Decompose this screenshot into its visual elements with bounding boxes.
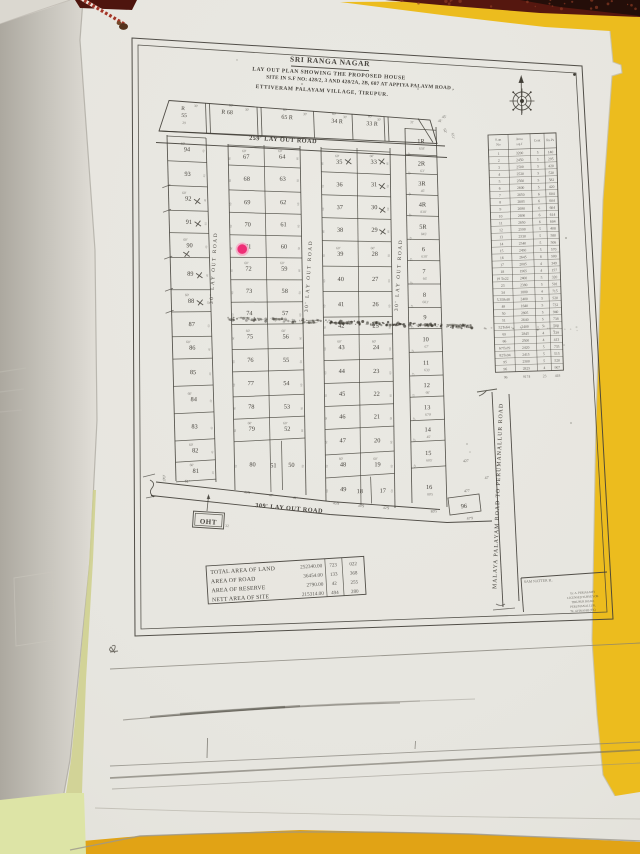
svg-text:6: 6: [539, 213, 541, 217]
svg-text:5: 5: [542, 324, 544, 328]
svg-text:50: 50: [288, 462, 294, 469]
svg-text:52: 52: [284, 426, 290, 433]
svg-text:30': 30': [343, 115, 348, 119]
svg-text:96: 96: [461, 503, 468, 510]
svg-text:6: 6: [539, 220, 541, 224]
svg-text:582: 582: [549, 178, 555, 182]
svg-text:59: 59: [281, 266, 287, 273]
svg-text:5R: 5R: [419, 224, 427, 231]
svg-text:5: 5: [539, 234, 541, 238]
svg-text:33: 33: [371, 159, 377, 166]
svg-text:408: 408: [550, 227, 556, 231]
svg-text:6: 6: [538, 199, 540, 203]
svg-text:35: 35: [336, 159, 342, 166]
svg-text:66': 66': [426, 391, 431, 395]
svg-text:10: 10: [499, 214, 503, 218]
svg-text:93: 93: [184, 171, 190, 178]
svg-text:5: 5: [537, 151, 539, 155]
svg-text:17: 17: [500, 263, 504, 267]
svg-text:63': 63': [420, 169, 425, 173]
svg-text:3: 3: [498, 166, 500, 170]
svg-text:34: 34: [501, 291, 505, 295]
svg-text:2845: 2845: [522, 332, 530, 336]
svg-text:683': 683': [422, 300, 428, 304]
svg-text:349: 349: [551, 261, 557, 265]
svg-text:715: 715: [552, 289, 558, 293]
svg-text:61': 61': [185, 478, 190, 483]
svg-text:580: 580: [550, 234, 556, 238]
svg-text:2400: 2400: [520, 276, 528, 280]
svg-text:5: 5: [542, 317, 544, 321]
svg-text:940: 940: [553, 310, 559, 314]
svg-text:6: 6: [538, 206, 540, 210]
svg-text:2560: 2560: [517, 179, 525, 183]
svg-text:11: 11: [423, 360, 429, 367]
svg-text:45': 45': [421, 189, 426, 193]
svg-text:31: 31: [371, 181, 377, 188]
svg-text:638': 638': [419, 147, 425, 151]
svg-text:2400: 2400: [521, 325, 529, 329]
svg-text:570: 570: [551, 247, 557, 251]
svg-text:60': 60': [181, 142, 186, 146]
svg-text:2690: 2690: [518, 214, 526, 218]
svg-text:23: 23: [543, 374, 547, 378]
svg-text:494: 494: [331, 591, 339, 596]
svg-text:2520: 2520: [516, 172, 524, 176]
svg-text:2640: 2640: [521, 318, 529, 322]
svg-text:5.35&48: 5.35&48: [497, 298, 510, 302]
svg-text:53: 53: [284, 404, 290, 411]
svg-text:12: 12: [499, 228, 503, 232]
svg-text:157: 157: [551, 268, 557, 272]
svg-text:614: 614: [550, 213, 556, 217]
svg-text:60': 60': [244, 261, 249, 265]
svg-text:60': 60': [185, 293, 190, 297]
svg-text:60': 60': [281, 329, 286, 333]
svg-text:R: R: [181, 106, 185, 112]
svg-text:60': 60': [190, 463, 195, 467]
svg-text:2650: 2650: [517, 193, 525, 197]
svg-text:845': 845': [421, 232, 427, 236]
svg-text:19 To22: 19 To22: [496, 277, 508, 281]
svg-text:29: 29: [182, 121, 186, 125]
svg-text:679': 679': [425, 413, 431, 417]
svg-text:2: 2: [498, 159, 500, 163]
svg-text:66': 66': [423, 277, 428, 281]
svg-text:368: 368: [350, 571, 358, 576]
svg-text:5: 5: [538, 185, 540, 189]
svg-text:604: 604: [549, 206, 555, 210]
svg-text:55: 55: [181, 113, 187, 119]
svg-text:36454.00: 36454.00: [303, 572, 323, 579]
svg-text:520: 520: [554, 359, 560, 363]
svg-text:41': 41': [438, 119, 443, 123]
svg-text:5: 5: [543, 359, 545, 363]
svg-text:50: 50: [502, 312, 506, 316]
svg-text:10: 10: [422, 336, 428, 343]
svg-text:14: 14: [500, 242, 504, 246]
svg-text:42'9: 42'9: [383, 506, 390, 510]
svg-text:6: 6: [499, 187, 501, 191]
svg-text:2R: 2R: [418, 160, 426, 167]
svg-text:295: 295: [548, 157, 554, 161]
svg-text:66: 66: [503, 339, 507, 343]
svg-text:63: 63: [279, 176, 285, 183]
svg-text:520: 520: [552, 296, 558, 300]
svg-text:27: 27: [372, 276, 378, 283]
svg-text:51: 51: [502, 319, 506, 323]
svg-text:2825: 2825: [523, 366, 531, 370]
svg-text:723: 723: [329, 563, 337, 568]
svg-text:60': 60': [372, 340, 377, 344]
svg-text:6: 6: [540, 255, 542, 259]
svg-text:43: 43: [338, 344, 344, 351]
svg-text:60': 60': [246, 329, 251, 333]
svg-text:s.q.f: s.q.f: [516, 142, 523, 146]
svg-text:2650: 2650: [518, 221, 526, 225]
svg-text:34 R: 34 R: [331, 119, 343, 126]
svg-text:60': 60': [332, 112, 337, 116]
svg-text:339: 339: [553, 331, 559, 335]
svg-text:1: 1: [498, 152, 500, 156]
svg-text:907: 907: [555, 366, 561, 370]
svg-text:60': 60': [335, 154, 340, 158]
svg-text:1880: 1880: [520, 290, 528, 294]
svg-text:26: 26: [372, 301, 378, 308]
svg-text:60': 60': [278, 149, 283, 153]
svg-text:604: 604: [549, 192, 555, 196]
svg-text:735: 735: [554, 345, 560, 349]
svg-text:31': 31': [410, 120, 415, 124]
svg-text:60': 60': [339, 457, 344, 461]
svg-text:80'5: 80'5: [427, 492, 433, 496]
svg-text:2590: 2590: [518, 227, 526, 231]
svg-text:9174: 9174: [523, 375, 531, 379]
svg-text:5: 5: [541, 283, 543, 287]
svg-text:2450: 2450: [516, 158, 524, 162]
svg-text:84: 84: [191, 396, 198, 403]
svg-text:5: 5: [543, 345, 545, 349]
svg-text:4: 4: [541, 290, 543, 294]
svg-text:61: 61: [280, 221, 286, 228]
svg-text:95: 95: [503, 360, 507, 364]
svg-text:65 R: 65 R: [281, 115, 293, 122]
svg-text:2645: 2645: [519, 255, 527, 259]
svg-text:83: 83: [191, 423, 197, 430]
svg-text:40'9: 40'9: [358, 504, 365, 508]
svg-text:5: 5: [539, 241, 541, 245]
svg-text:320: 320: [552, 275, 558, 279]
svg-text:54: 54: [283, 380, 290, 387]
svg-text:500: 500: [551, 254, 557, 258]
svg-text:75: 75: [247, 333, 253, 340]
svg-text:2530: 2530: [518, 234, 526, 238]
svg-text:13: 13: [499, 235, 503, 239]
svg-text:60': 60': [182, 191, 187, 195]
svg-text:5: 5: [540, 248, 542, 252]
svg-text:91: 91: [186, 219, 192, 226]
svg-text:81: 81: [193, 468, 199, 475]
svg-text:20: 20: [374, 437, 380, 444]
svg-text:1965: 1965: [520, 269, 528, 273]
svg-text:67: 67: [243, 154, 249, 161]
svg-text:67To79: 67To79: [499, 346, 510, 350]
svg-text:4R: 4R: [419, 201, 427, 208]
svg-text:4: 4: [542, 338, 544, 342]
svg-text:52To64: 52To64: [498, 325, 509, 329]
svg-text:15: 15: [425, 450, 431, 457]
svg-text:74: 74: [246, 310, 253, 317]
svg-text:70: 70: [244, 221, 250, 228]
svg-text:420: 420: [548, 164, 554, 168]
svg-text:Rs.Ps: Rs.Ps: [546, 138, 554, 142]
svg-text:633': 633': [424, 368, 430, 372]
svg-text:64: 64: [279, 154, 286, 161]
svg-text:47': 47': [485, 476, 490, 480]
svg-text:4: 4: [540, 269, 542, 273]
svg-text:501: 501: [552, 282, 558, 286]
svg-text:23: 23: [373, 368, 379, 375]
svg-text:96: 96: [503, 367, 507, 371]
svg-text:60': 60': [229, 103, 234, 107]
svg-text:5: 5: [541, 303, 543, 307]
svg-text:49: 49: [501, 305, 505, 309]
svg-text:60': 60': [283, 421, 288, 425]
svg-text:520: 520: [548, 171, 554, 175]
svg-text:2500: 2500: [522, 359, 530, 363]
svg-text:732: 732: [553, 303, 559, 307]
svg-text:3200: 3200: [516, 151, 524, 155]
svg-text:79: 79: [249, 426, 255, 433]
svg-text:30': 30': [194, 104, 199, 108]
svg-text:2685: 2685: [517, 200, 525, 204]
svg-text:5: 5: [537, 171, 539, 175]
svg-text:60': 60': [373, 457, 378, 461]
svg-text:4: 4: [540, 262, 542, 266]
svg-text:838': 838': [420, 210, 426, 214]
svg-text:S.an: S.an: [495, 138, 501, 142]
svg-text:11: 11: [499, 221, 503, 225]
svg-text:32: 32: [225, 524, 229, 528]
svg-text:427: 427: [463, 459, 469, 463]
svg-text:47: 47: [340, 437, 346, 444]
svg-text:2085: 2085: [519, 262, 527, 266]
svg-text:60': 60': [337, 340, 342, 344]
svg-text:76: 76: [247, 357, 253, 364]
svg-text:38: 38: [337, 227, 343, 234]
svg-text:15: 15: [500, 249, 504, 253]
svg-text:55: 55: [283, 357, 289, 364]
svg-text:80'5: 80'5: [431, 509, 438, 513]
svg-text:413: 413: [554, 338, 560, 342]
svg-text:72: 72: [245, 266, 251, 273]
svg-text:022: 022: [349, 562, 357, 567]
svg-text:60': 60': [183, 238, 188, 242]
svg-text:21: 21: [374, 413, 380, 420]
svg-text:8: 8: [423, 292, 426, 299]
svg-text:638': 638': [421, 255, 427, 259]
svg-text:2790.00: 2790.00: [306, 582, 324, 589]
svg-text:3R: 3R: [418, 180, 426, 187]
svg-text:2500: 2500: [522, 339, 530, 343]
svg-text:1R: 1R: [417, 138, 425, 145]
svg-text:17: 17: [380, 488, 386, 495]
svg-text:5: 5: [541, 276, 543, 280]
svg-text:9: 9: [423, 314, 426, 321]
svg-text:255: 255: [350, 580, 358, 585]
svg-text:16: 16: [500, 256, 504, 260]
svg-text:85: 85: [190, 369, 196, 376]
svg-text:88: 88: [188, 298, 194, 305]
svg-text:133: 133: [330, 572, 338, 577]
svg-text:5: 5: [541, 297, 543, 301]
svg-text:18: 18: [500, 270, 504, 274]
svg-text:60': 60': [189, 443, 194, 447]
svg-text:80: 80: [249, 461, 255, 468]
svg-text:30: 30: [371, 204, 377, 211]
svg-text:515: 515: [554, 352, 560, 356]
svg-text:2600: 2600: [517, 186, 525, 190]
svg-text:24: 24: [373, 344, 380, 351]
svg-text:60': 60': [283, 108, 288, 112]
svg-text:87: 87: [189, 321, 195, 328]
svg-text:42: 42: [332, 582, 338, 587]
svg-text:2805: 2805: [521, 311, 529, 315]
svg-text:1640: 1640: [521, 304, 529, 308]
svg-text:44: 44: [339, 368, 346, 375]
svg-text:60': 60': [371, 246, 376, 250]
svg-text:23: 23: [501, 284, 505, 288]
svg-text:60': 60': [280, 261, 285, 265]
svg-text:12: 12: [424, 382, 430, 389]
svg-text:605': 605': [426, 458, 432, 462]
svg-text:60': 60': [336, 246, 341, 250]
svg-text:280: 280: [351, 590, 359, 595]
svg-text:45: 45: [339, 391, 345, 398]
svg-text:9: 9: [499, 207, 501, 211]
svg-text:68: 68: [244, 176, 250, 183]
svg-text:7: 7: [499, 194, 501, 198]
svg-text:506: 506: [551, 241, 557, 245]
svg-text:51: 51: [270, 462, 276, 469]
svg-text:48: 48: [340, 461, 346, 468]
svg-text:13: 13: [424, 404, 430, 411]
svg-text:78: 78: [248, 404, 254, 411]
svg-text:36: 36: [336, 181, 342, 188]
svg-text:OHT: OHT: [200, 518, 218, 527]
svg-text:Area: Area: [516, 137, 523, 141]
svg-text:82: 82: [192, 447, 198, 454]
svg-text:738: 738: [553, 317, 559, 321]
svg-text:67': 67': [424, 345, 429, 349]
svg-text:60': 60': [368, 114, 373, 118]
svg-text:2540: 2540: [519, 241, 527, 245]
svg-text:58: 58: [282, 288, 288, 295]
svg-text:57: 57: [282, 310, 288, 317]
svg-text:R 68: R 68: [221, 110, 233, 117]
svg-text:477: 477: [464, 489, 470, 493]
svg-text:65: 65: [502, 332, 506, 336]
svg-text:90: 90: [186, 242, 192, 249]
svg-text:86: 86: [189, 345, 195, 352]
svg-text:56: 56: [282, 333, 288, 340]
svg-text:28: 28: [372, 251, 378, 258]
svg-text:4: 4: [498, 173, 500, 177]
svg-text:39: 39: [337, 251, 343, 258]
svg-text:62: 62: [280, 199, 286, 206]
svg-text:5: 5: [498, 180, 500, 184]
svg-text:5: 5: [537, 165, 539, 169]
svg-text:60: 60: [281, 243, 287, 250]
svg-text:4: 4: [542, 331, 544, 335]
svg-text:96: 96: [504, 375, 508, 379]
svg-text:4: 4: [543, 366, 545, 370]
svg-text:2690: 2690: [518, 207, 526, 211]
svg-text:82To94: 82To94: [499, 353, 510, 357]
svg-text:46: 46: [339, 413, 345, 420]
svg-text:6: 6: [422, 246, 425, 253]
svg-text:30': 30': [377, 118, 382, 122]
svg-text:19: 19: [374, 461, 380, 468]
svg-text:41: 41: [338, 301, 344, 308]
svg-text:47'9: 47'9: [467, 516, 474, 520]
svg-text:30': 30': [245, 108, 250, 112]
svg-text:73: 73: [246, 288, 252, 295]
svg-text:60': 60': [242, 149, 247, 153]
svg-text:60': 60': [248, 421, 253, 425]
svg-text:40: 40: [338, 276, 344, 283]
svg-text:5: 5: [543, 352, 545, 356]
svg-text:418: 418: [555, 374, 561, 378]
svg-text:Cent: Cent: [534, 138, 541, 142]
svg-text:30': 30': [303, 112, 308, 116]
svg-text:5: 5: [542, 310, 544, 314]
svg-text:33 R: 33 R: [366, 121, 378, 128]
svg-text:2400: 2400: [520, 297, 528, 301]
svg-text:140: 140: [548, 150, 554, 154]
svg-text:94: 94: [184, 146, 191, 153]
svg-text:60': 60': [188, 392, 193, 396]
svg-text:8: 8: [499, 200, 501, 204]
svg-text:77: 77: [248, 380, 254, 387]
svg-text:7: 7: [422, 268, 425, 275]
svg-text:No: No: [496, 143, 501, 147]
svg-text:5: 5: [537, 178, 539, 182]
svg-text:45': 45': [442, 115, 447, 119]
svg-text:604: 604: [550, 220, 556, 224]
svg-text:92: 92: [185, 195, 191, 202]
svg-text:69: 69: [244, 199, 250, 206]
svg-text:29: 29: [371, 227, 377, 234]
svg-text:60': 60': [370, 154, 375, 158]
svg-text:89: 89: [187, 271, 193, 278]
svg-text:5: 5: [537, 158, 539, 162]
svg-text:420: 420: [549, 185, 555, 189]
svg-text:2420: 2420: [522, 346, 530, 350]
svg-text:604: 604: [549, 199, 555, 203]
svg-text:500: 500: [553, 324, 559, 328]
svg-text:2450: 2450: [519, 248, 527, 252]
svg-text:14: 14: [425, 426, 432, 433]
svg-text:5: 5: [539, 227, 541, 231]
svg-text:22: 22: [373, 391, 379, 398]
svg-text:2415: 2415: [522, 353, 530, 357]
svg-text:37: 37: [337, 204, 343, 211]
svg-text:45': 45': [427, 435, 432, 439]
svg-text:6: 6: [538, 192, 540, 196]
svg-text:18: 18: [357, 488, 363, 495]
svg-text:2380: 2380: [520, 283, 528, 287]
